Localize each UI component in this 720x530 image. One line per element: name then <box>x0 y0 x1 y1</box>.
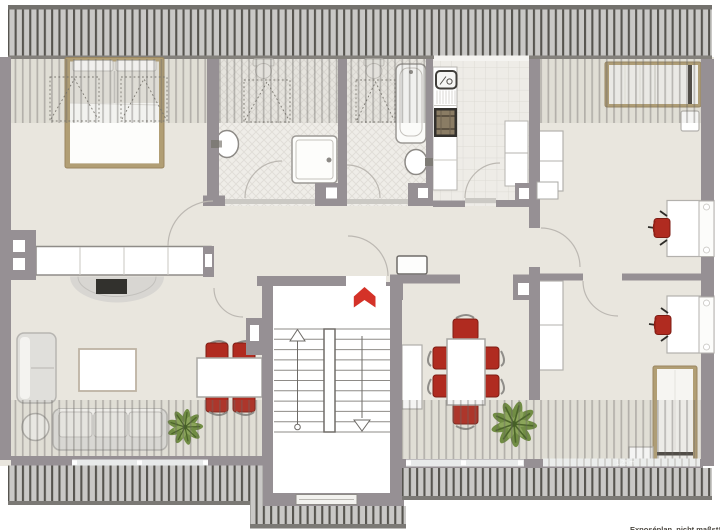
svg-text:Exposéplan, nicht maßstäblich: Exposéplan, nicht maßstäblich <box>630 525 720 530</box>
svg-text:1,25 m: 1,25 m <box>616 461 634 467</box>
